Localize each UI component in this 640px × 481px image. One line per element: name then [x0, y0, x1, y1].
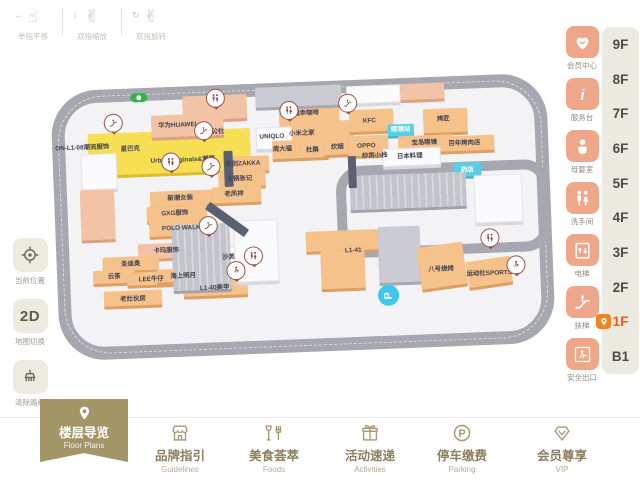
store-block[interactable]: [377, 226, 421, 284]
restroom-button[interactable]: [566, 182, 599, 214]
info-desk-button[interactable]: [566, 78, 599, 110]
floor-item-3f[interactable]: 3F: [602, 245, 639, 260]
store-block[interactable]: [400, 82, 445, 100]
tab-label: 停车缴费: [414, 445, 510, 464]
tab-label: 品牌指引: [132, 445, 228, 464]
store-block[interactable]: [80, 153, 117, 190]
current-floor-badge: [596, 314, 611, 329]
floor-item-2f[interactable]: 2F: [602, 280, 639, 295]
store-label: 八号烧烤: [428, 264, 454, 274]
vip-diamond-icon: [551, 422, 573, 444]
floor-item-1f[interactable]: 1F: [602, 314, 639, 329]
store-label: 烤匠: [437, 114, 450, 123]
service-label: 洗手间: [563, 216, 601, 227]
floor-item-7f[interactable]: 7F: [602, 106, 639, 121]
tab-sublabel: Floor Plans: [40, 441, 128, 450]
store-label: 老凤祥: [224, 189, 244, 199]
service-label: 电梯: [563, 268, 601, 279]
tab-sublabel: Activities: [322, 465, 418, 474]
store-label: 海上明月: [170, 271, 196, 281]
store-block[interactable]: [474, 174, 524, 224]
store-label: 星巴克: [120, 144, 140, 154]
store-label: 药店: [461, 165, 474, 174]
restroom-pin-icon: [248, 250, 259, 261]
store-label: 华为HUAWEI: [158, 120, 197, 130]
escalator-icon: [572, 292, 593, 313]
pan-gesture-icon: ☝↔: [8, 5, 58, 29]
escalator-pin-icon: [203, 220, 214, 231]
metro-letter: P: [382, 291, 394, 299]
member-center-button[interactable]: [566, 26, 599, 58]
tab-parking[interactable]: 停车缴费Parking: [414, 422, 510, 474]
gesture-modifier: ↻: [132, 3, 140, 27]
floor-item-8f[interactable]: 8F: [602, 72, 639, 87]
safety-exit-button[interactable]: [566, 338, 599, 370]
tool-label: 当前位置: [8, 275, 52, 286]
gesture-label: 单指平移: [8, 31, 58, 42]
elevator-icon: [572, 240, 593, 261]
store-label: 周大福: [273, 144, 293, 154]
service-rail: 会员中心服务台母婴室洗手间电梯扶梯安全出口: [563, 26, 601, 390]
escalator-pin-icon: [108, 118, 119, 129]
restroom-pin-icon: [210, 93, 221, 104]
gift-icon: [359, 422, 381, 444]
tab-guidelines[interactable]: 品牌指引Guidelines: [132, 422, 228, 474]
tab-sublabel: Parking: [414, 465, 510, 474]
escalator-pin-icon: [205, 161, 216, 172]
store-label: 圣迪奥: [121, 259, 141, 269]
store-label: 火锅张记: [227, 174, 253, 184]
store-label: 百年烤肉店: [448, 138, 480, 148]
gesture-hint: ✌↕双指缩放: [67, 5, 117, 42]
restroom-icon: [572, 188, 593, 209]
tool: 2D地图切换: [8, 299, 52, 347]
member-center-icon: [572, 32, 593, 53]
store-label: 云茶: [108, 272, 121, 281]
clear-route-button[interactable]: [13, 360, 48, 394]
store-label: 新潮女装: [167, 193, 193, 203]
restroom-pin-icon: [283, 105, 294, 116]
info-desk-icon: [572, 84, 593, 105]
store-label: 宝岛眼镜: [411, 137, 437, 147]
store-label: OPPO: [357, 142, 376, 150]
escalator-pin-icon: [342, 97, 353, 108]
tab-sublabel: Guidelines: [132, 465, 228, 474]
tab-sublabel: VIP: [514, 465, 610, 474]
entrance-badge: [130, 93, 147, 103]
service-item: 扶梯: [563, 286, 601, 338]
baby-room-button[interactable]: [566, 130, 599, 162]
floor-item-4f[interactable]: 4F: [602, 210, 639, 225]
store-label: LEE牛仔: [138, 274, 164, 284]
escalator-pin-icon: [198, 125, 209, 136]
floor-item-6f[interactable]: 6F: [602, 141, 639, 156]
floor-map-canvas[interactable]: 星巴克Urban originals&潮牌ON-L1-08潮流服饰瑞幸咖啡小米之…: [50, 73, 556, 362]
floor-selector: 9F8F7F6F5F4F3F2F1FB1: [602, 27, 639, 374]
store-label: 名创ZAKKA: [225, 158, 261, 168]
service-item: 母婴室: [563, 130, 601, 182]
safety-exit-icon: [572, 344, 593, 365]
tool-label: 地图切换: [8, 336, 52, 347]
gesture-modifier: ↕: [73, 3, 78, 27]
service-label: 服务台: [563, 112, 601, 123]
gesture-modifier: ↔: [14, 3, 23, 27]
tab-label: 楼层导览: [40, 422, 128, 441]
store-block[interactable]: [348, 156, 357, 188]
map-pin-icon: [76, 405, 93, 422]
service-label: 安全出口: [563, 372, 601, 383]
gesture-label: 双指旋转: [126, 31, 176, 42]
tab-sublabel: Foods: [226, 465, 322, 474]
tab-activities[interactable]: 活动速递Activities: [322, 422, 418, 474]
service-item: 服务台: [563, 78, 601, 130]
store-label: 眼镜站: [391, 124, 411, 134]
clear-route-icon: [20, 367, 40, 387]
store-label: KFC: [363, 117, 376, 125]
service-label: 母婴室: [563, 164, 601, 175]
floor-item-5f[interactable]: 5F: [602, 176, 639, 191]
map-2d-toggle: 2D: [20, 308, 40, 325]
map-2d-toggle-button[interactable]: 2D: [13, 299, 48, 333]
tool: 当前位置: [8, 238, 52, 286]
tab-label: 会员尊享: [514, 445, 610, 464]
floor-item-9f[interactable]: 9F: [602, 37, 639, 52]
rotate-gesture-icon: ✌↻: [126, 5, 176, 29]
tab-floor-plans[interactable]: 楼层导览Floor Plans: [40, 399, 128, 462]
service-label: 会员中心: [563, 60, 601, 71]
dining-icon: [263, 422, 285, 444]
gesture-hints: ☝↔单指平移✌↕双指缩放✌↻双指旋转: [8, 5, 176, 42]
service-item: 安全出口: [563, 338, 601, 390]
store-block[interactable]: [349, 172, 466, 210]
service-item: 电梯: [563, 234, 601, 286]
restroom-pin-icon: [484, 232, 495, 243]
current-location-button[interactable]: [13, 238, 48, 272]
store-label: 小米之家: [289, 128, 315, 138]
floor-item-b1[interactable]: B1: [602, 349, 639, 364]
gesture-hint: ✌↻双指旋转: [126, 5, 176, 42]
exit-pin-icon: [230, 265, 241, 276]
store-label: 沙芙: [222, 252, 235, 261]
store-label: 运动社SPORTS: [466, 268, 512, 279]
restroom-pin-icon: [165, 156, 176, 167]
gesture-label: 双指缩放: [67, 31, 117, 42]
store-label: 日本料理: [397, 151, 423, 161]
store-label: 老灶伙房: [120, 294, 146, 304]
store-label: L1-41: [345, 246, 362, 254]
gesture-divider: [62, 9, 63, 35]
store-label: GXG服饰: [161, 208, 188, 218]
gesture-hint: ☝↔单指平移: [8, 5, 58, 42]
current-location-icon: [20, 245, 40, 265]
tab-label: 活动速递: [322, 445, 418, 464]
store-block[interactable]: [320, 250, 365, 290]
store-label: 炒货小栈: [362, 150, 388, 160]
store-label: L1-40美甲: [200, 282, 230, 292]
service-item: 洗手间: [563, 182, 601, 234]
entrance-dot-icon: [136, 95, 141, 100]
baby-room-icon: [572, 136, 593, 157]
exit-pin-icon: [510, 259, 521, 270]
parking-icon: [451, 422, 473, 444]
store-block[interactable]: [306, 229, 379, 252]
store-label: 卡玛服饰: [153, 245, 179, 255]
store-block[interactable]: [255, 84, 342, 107]
store-label: 炊烟: [331, 142, 344, 151]
map-tools: 当前位置2D地图切换清除路线: [8, 238, 52, 421]
service-item: 会员中心: [563, 26, 601, 78]
tab-foods[interactable]: 美食荟萃Foods: [226, 422, 322, 474]
store-block[interactable]: [80, 189, 116, 240]
location-pin-icon: [599, 317, 609, 327]
store-label: 杜鹃: [306, 145, 319, 154]
store-label: POLO WALK: [162, 223, 201, 232]
store-label: UNIQLO: [259, 132, 284, 140]
tab-label: 美食荟萃: [226, 445, 322, 464]
elevator-button[interactable]: [566, 234, 599, 266]
escalator-button[interactable]: [566, 286, 599, 318]
gesture-divider: [121, 9, 122, 35]
pinch-zoom-gesture-icon: ✌↕: [67, 5, 117, 29]
tab-vip[interactable]: 会员尊享VIP: [514, 422, 610, 474]
storefront-icon: [169, 422, 191, 444]
